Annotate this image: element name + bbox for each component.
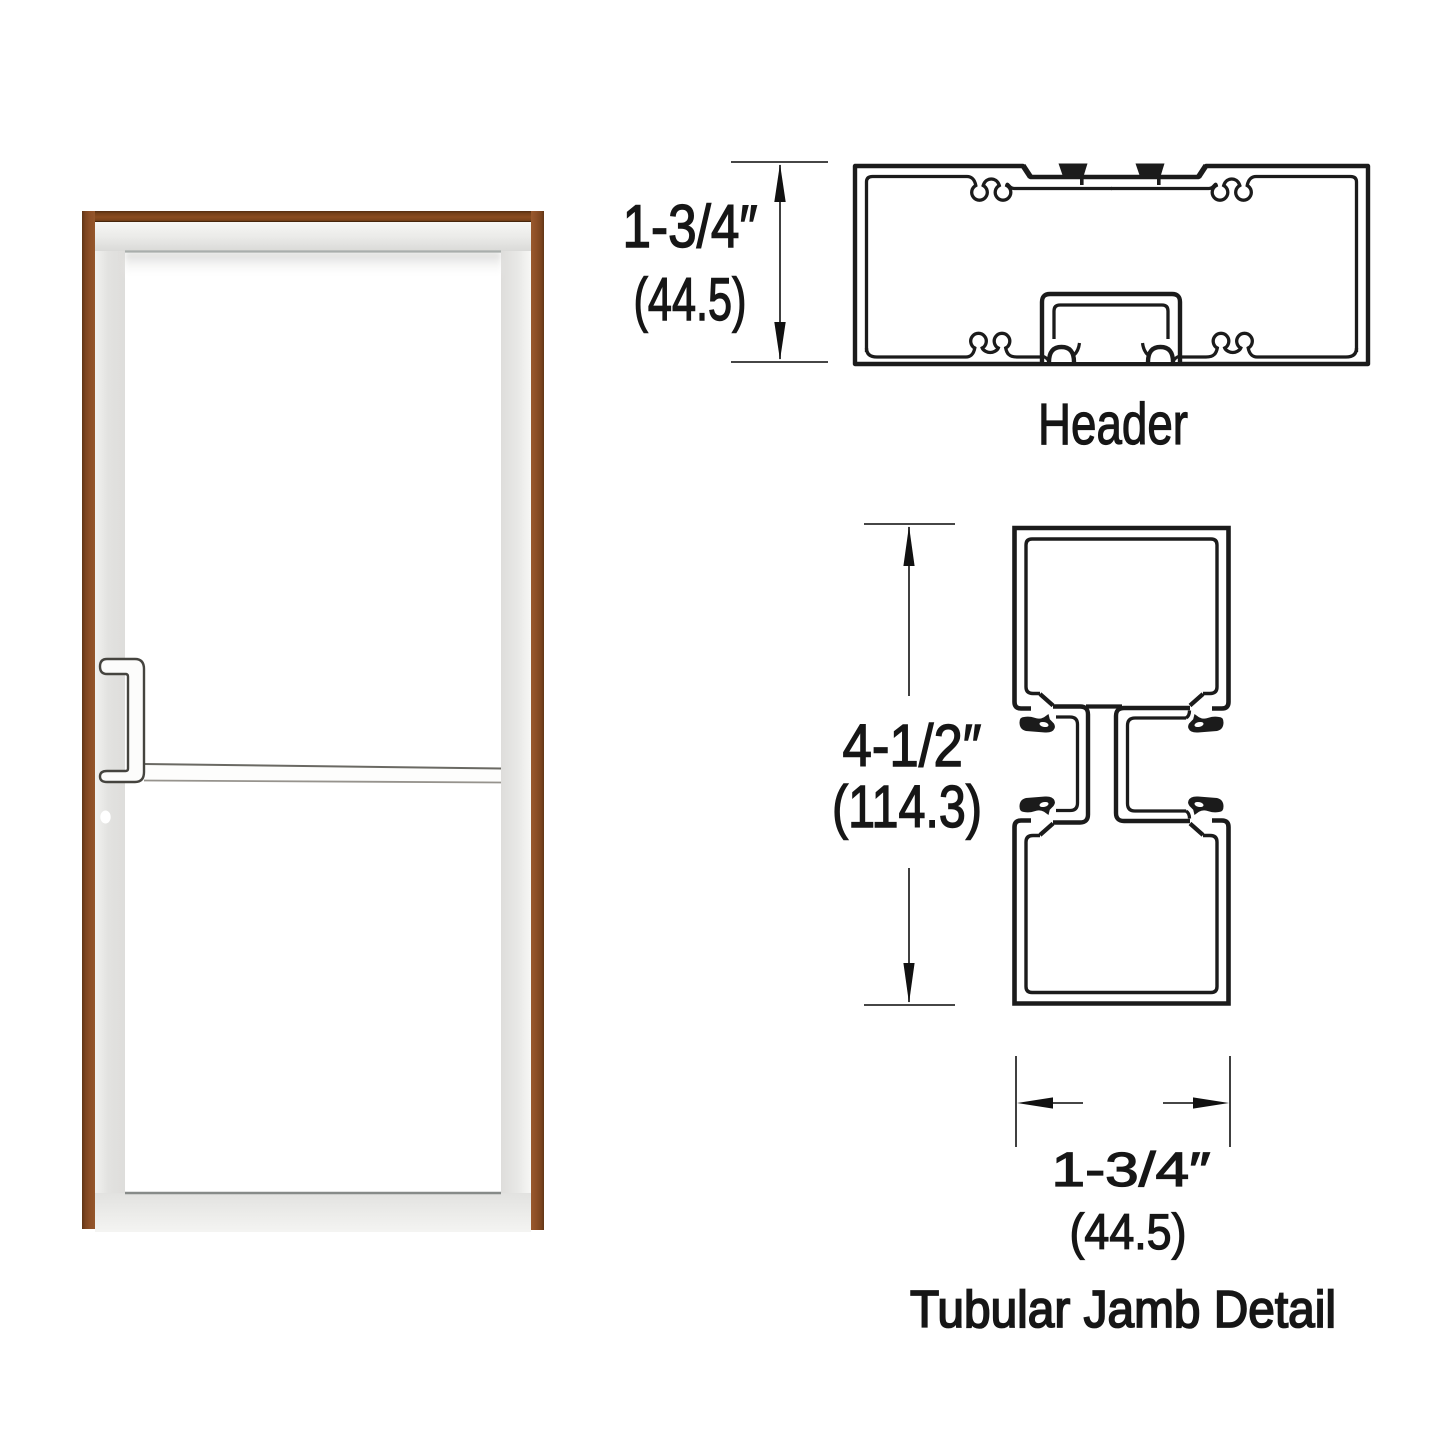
svg-text:1-3/4″: 1-3/4″	[1052, 1144, 1211, 1197]
svg-text:(44.5): (44.5)	[1070, 1204, 1187, 1260]
svg-text:Tubular Jamb Detail: Tubular Jamb Detail	[910, 1281, 1336, 1339]
svg-text:(44.5): (44.5)	[634, 266, 747, 333]
svg-text:Header: Header	[1038, 392, 1188, 457]
svg-text:4-1/2″: 4-1/2″	[843, 713, 982, 779]
svg-text:(114.3): (114.3)	[832, 774, 982, 840]
svg-text:1-3/4″: 1-3/4″	[623, 193, 758, 260]
